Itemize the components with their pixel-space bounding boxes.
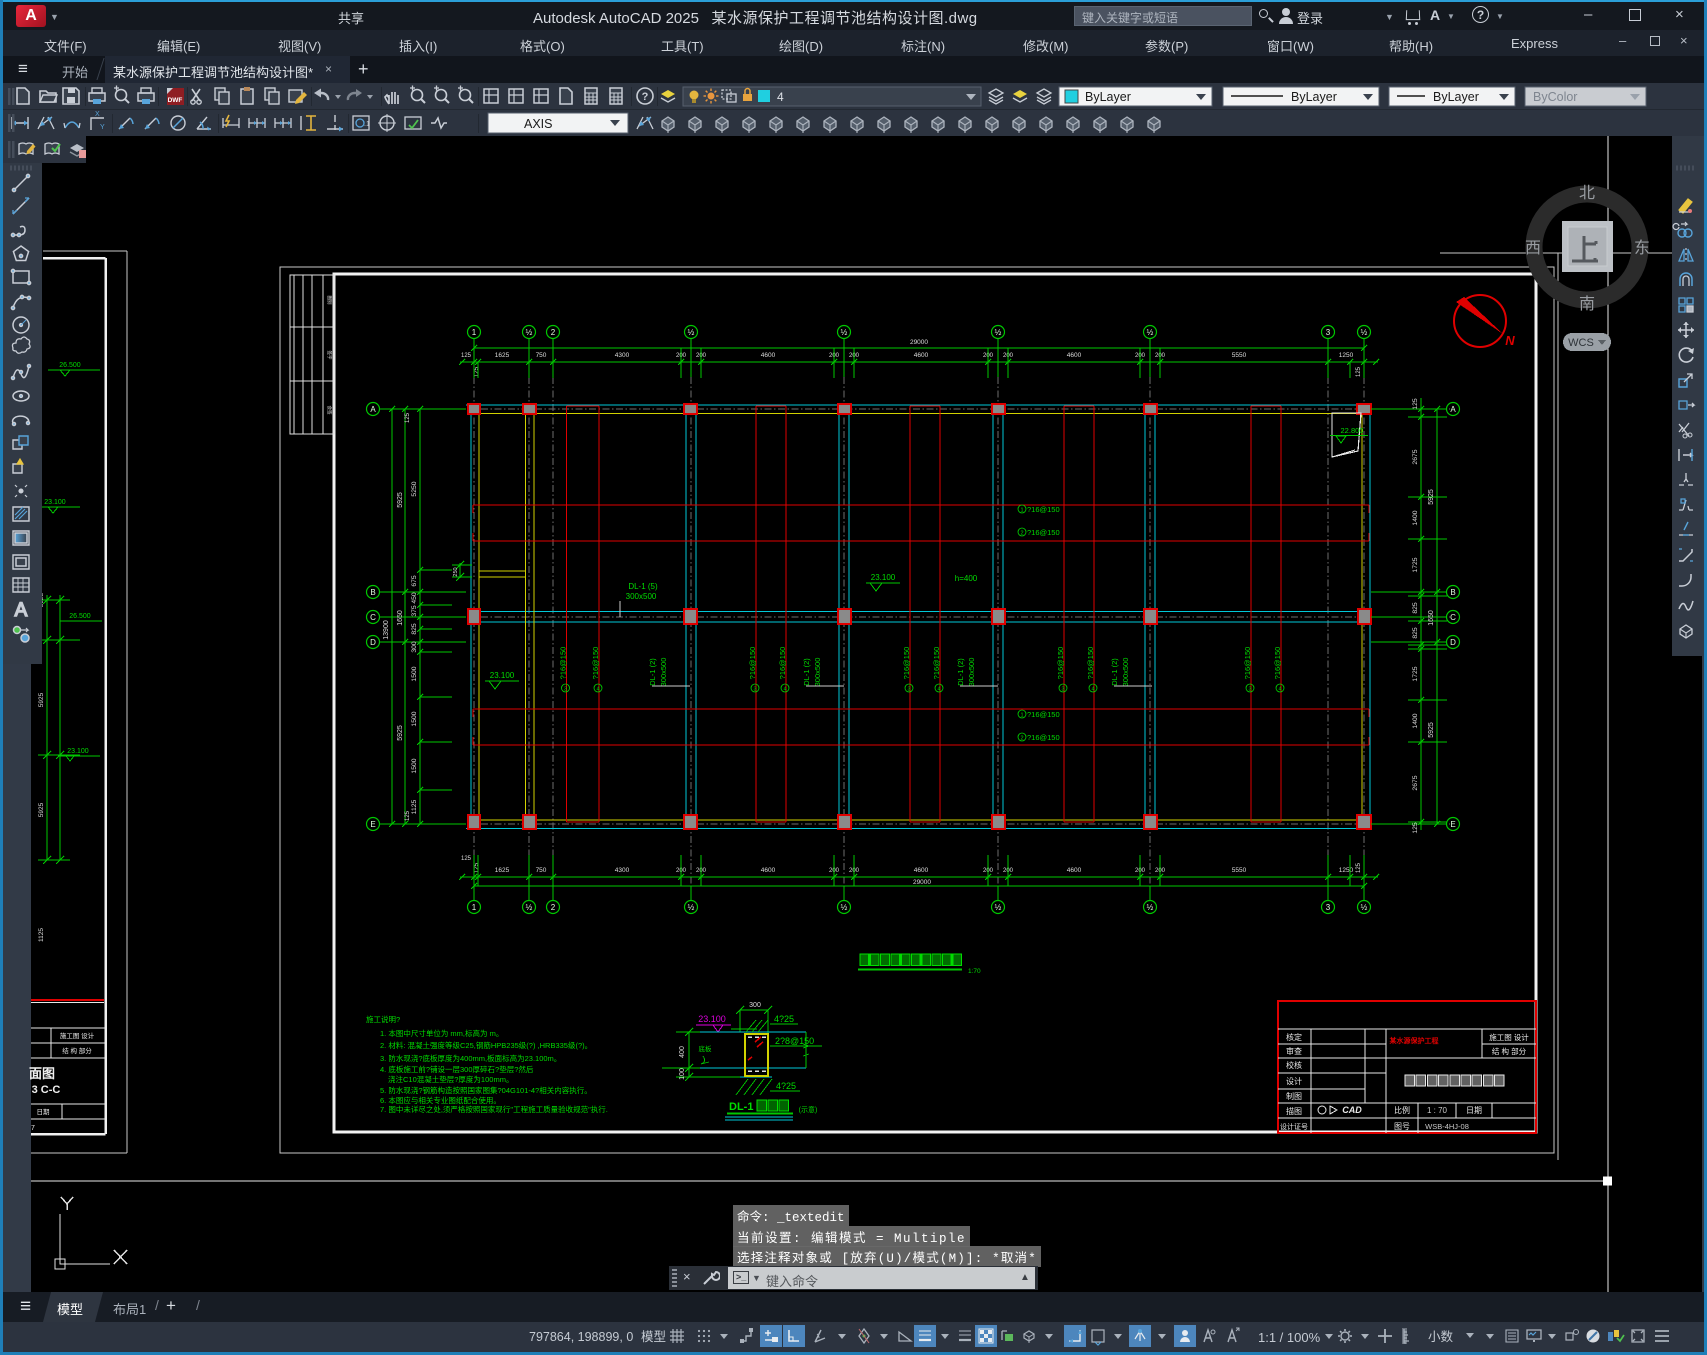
svg-text:模型: 模型 xyxy=(641,1330,666,1344)
svg-text:1:1 / 100%: 1:1 / 100% xyxy=(1258,1330,1321,1345)
svg-text:797864, 198899, 0: 797864, 198899, 0 xyxy=(529,1330,633,1344)
svg-text:DWF: DWF xyxy=(168,97,183,104)
svg-text:小数: 小数 xyxy=(1428,1329,1454,1344)
svg-text:4: 4 xyxy=(777,90,784,104)
svg-text:ByColor: ByColor xyxy=(1533,90,1577,104)
svg-text:?: ? xyxy=(642,91,649,103)
svg-text:A: A xyxy=(15,600,28,621)
svg-text:Y: Y xyxy=(100,124,105,131)
svg-text:ByLayer: ByLayer xyxy=(1291,90,1337,104)
svg-text:X: X xyxy=(95,111,100,118)
svg-text:ByLayer: ByLayer xyxy=(1433,90,1479,104)
svg-text:ByLayer: ByLayer xyxy=(1085,90,1131,104)
svg-text:.1: .1 xyxy=(364,121,370,128)
svg-text:AXIS: AXIS xyxy=(524,117,553,131)
